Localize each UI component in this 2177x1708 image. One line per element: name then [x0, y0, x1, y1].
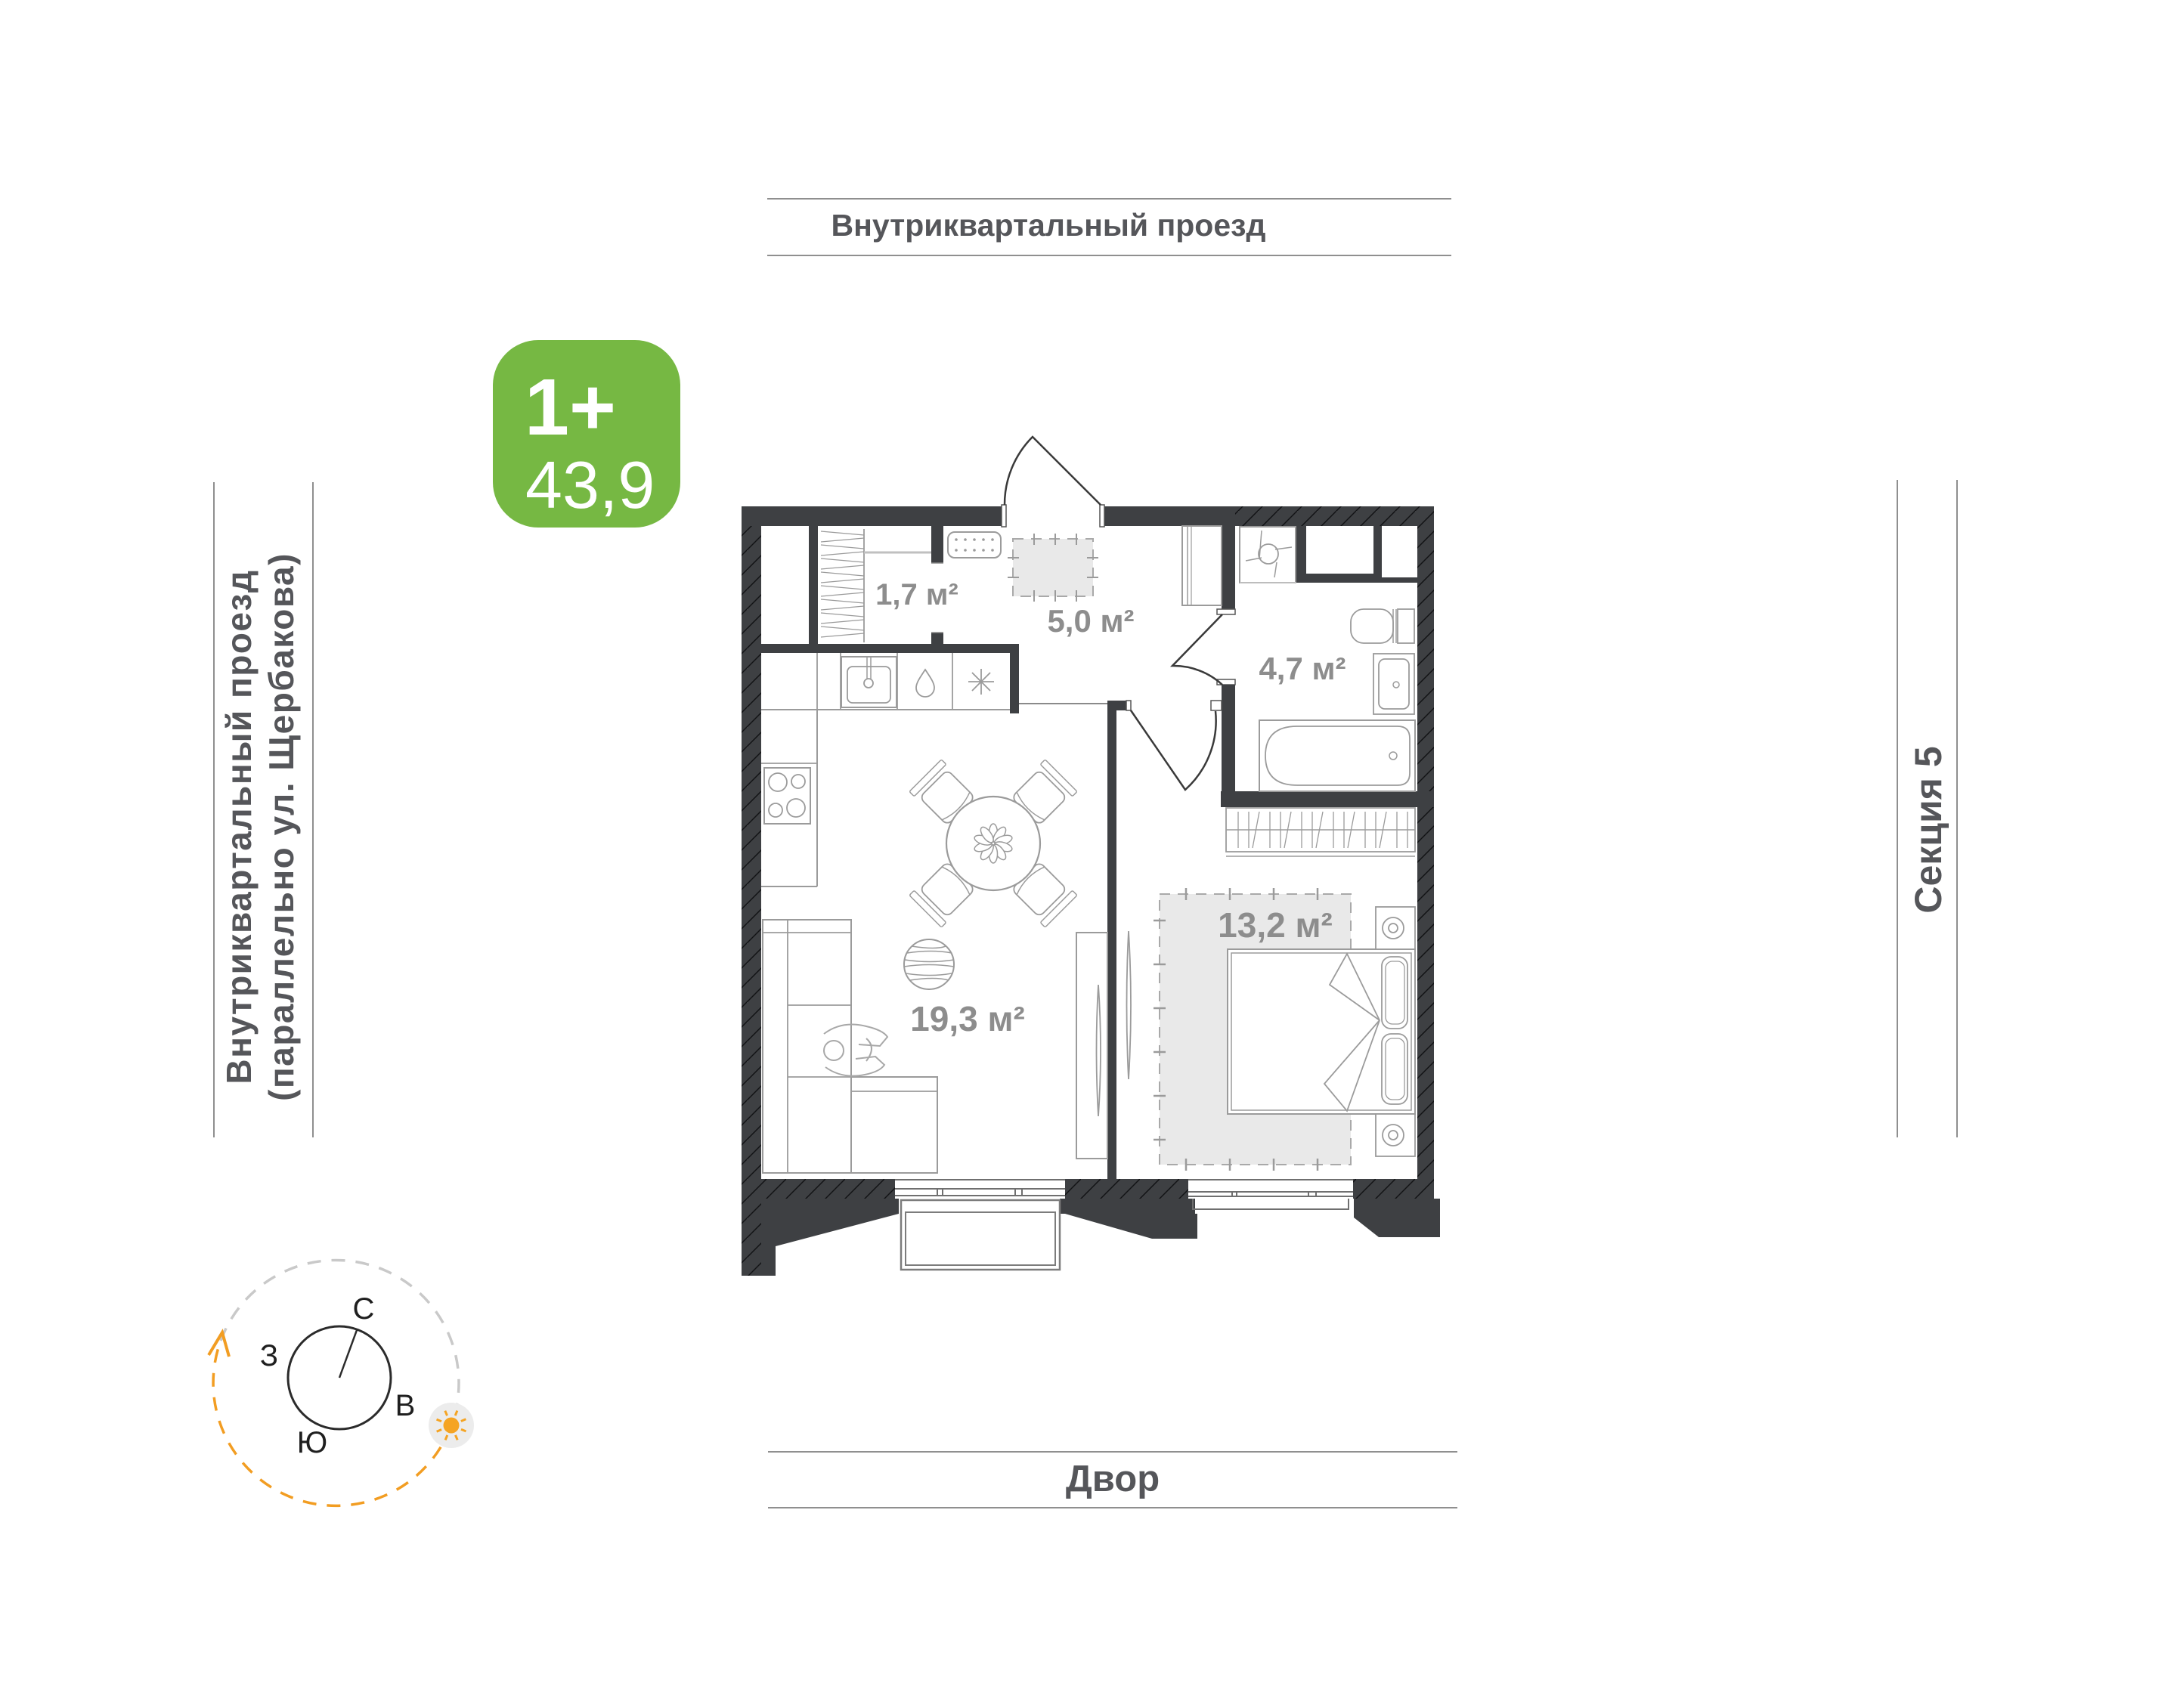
svg-text:Двор: Двор [1066, 1459, 1160, 1499]
svg-text:В: В [395, 1389, 416, 1422]
svg-text:4,7 м²: 4,7 м² [1259, 651, 1346, 686]
svg-text:Секция 5: Секция 5 [1907, 746, 1949, 913]
svg-text:З: З [260, 1339, 278, 1372]
svg-text:1+: 1+ [525, 363, 616, 452]
svg-text:Внутриквартальный проезд: Внутриквартальный проезд [219, 569, 259, 1084]
svg-text:5,0 м²: 5,0 м² [1047, 603, 1134, 639]
svg-text:С: С [353, 1292, 375, 1326]
svg-text:19,3 м²: 19,3 м² [910, 999, 1025, 1038]
svg-text:43,9: 43,9 [525, 447, 655, 522]
svg-text:13,2 м²: 13,2 м² [1218, 905, 1333, 945]
svg-text:Внутриквартальный проезд: Внутриквартальный проезд [831, 208, 1265, 243]
svg-text:Ю: Ю [297, 1426, 327, 1459]
svg-text:1,7 м²: 1,7 м² [875, 578, 958, 611]
svg-text:(параллельно ул. Щербакова): (параллельно ул. Щербакова) [262, 552, 301, 1101]
